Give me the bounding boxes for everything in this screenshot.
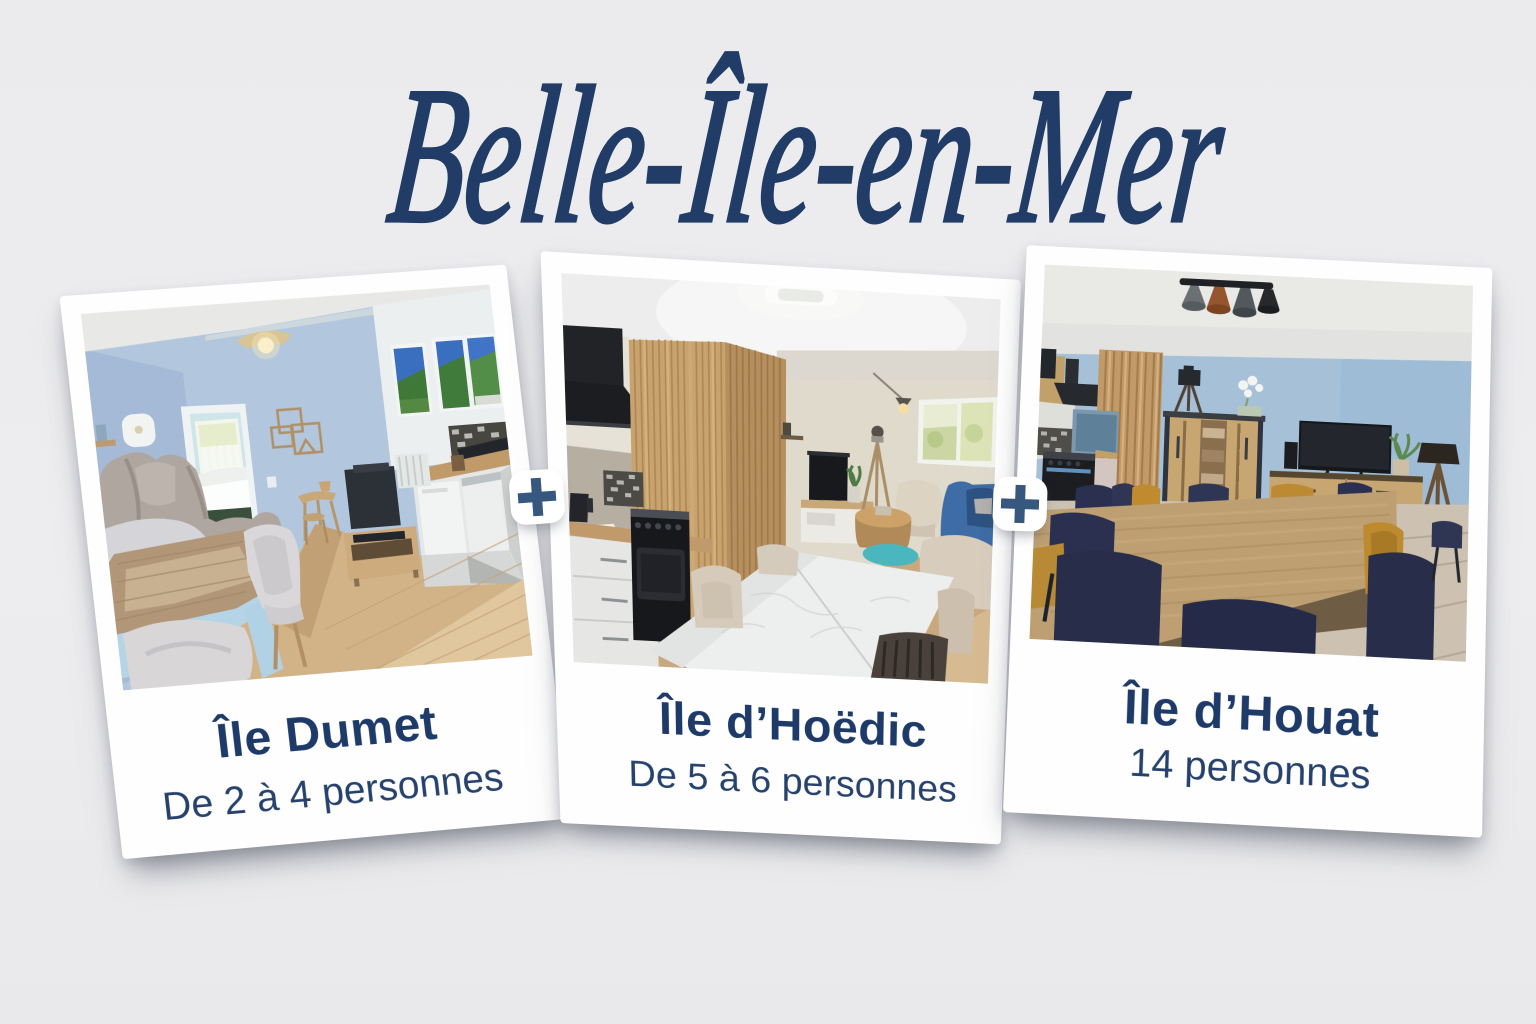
svg-text:Belle-Île-en-Mer: Belle-Île-en-Mer — [380, 46, 1234, 240]
